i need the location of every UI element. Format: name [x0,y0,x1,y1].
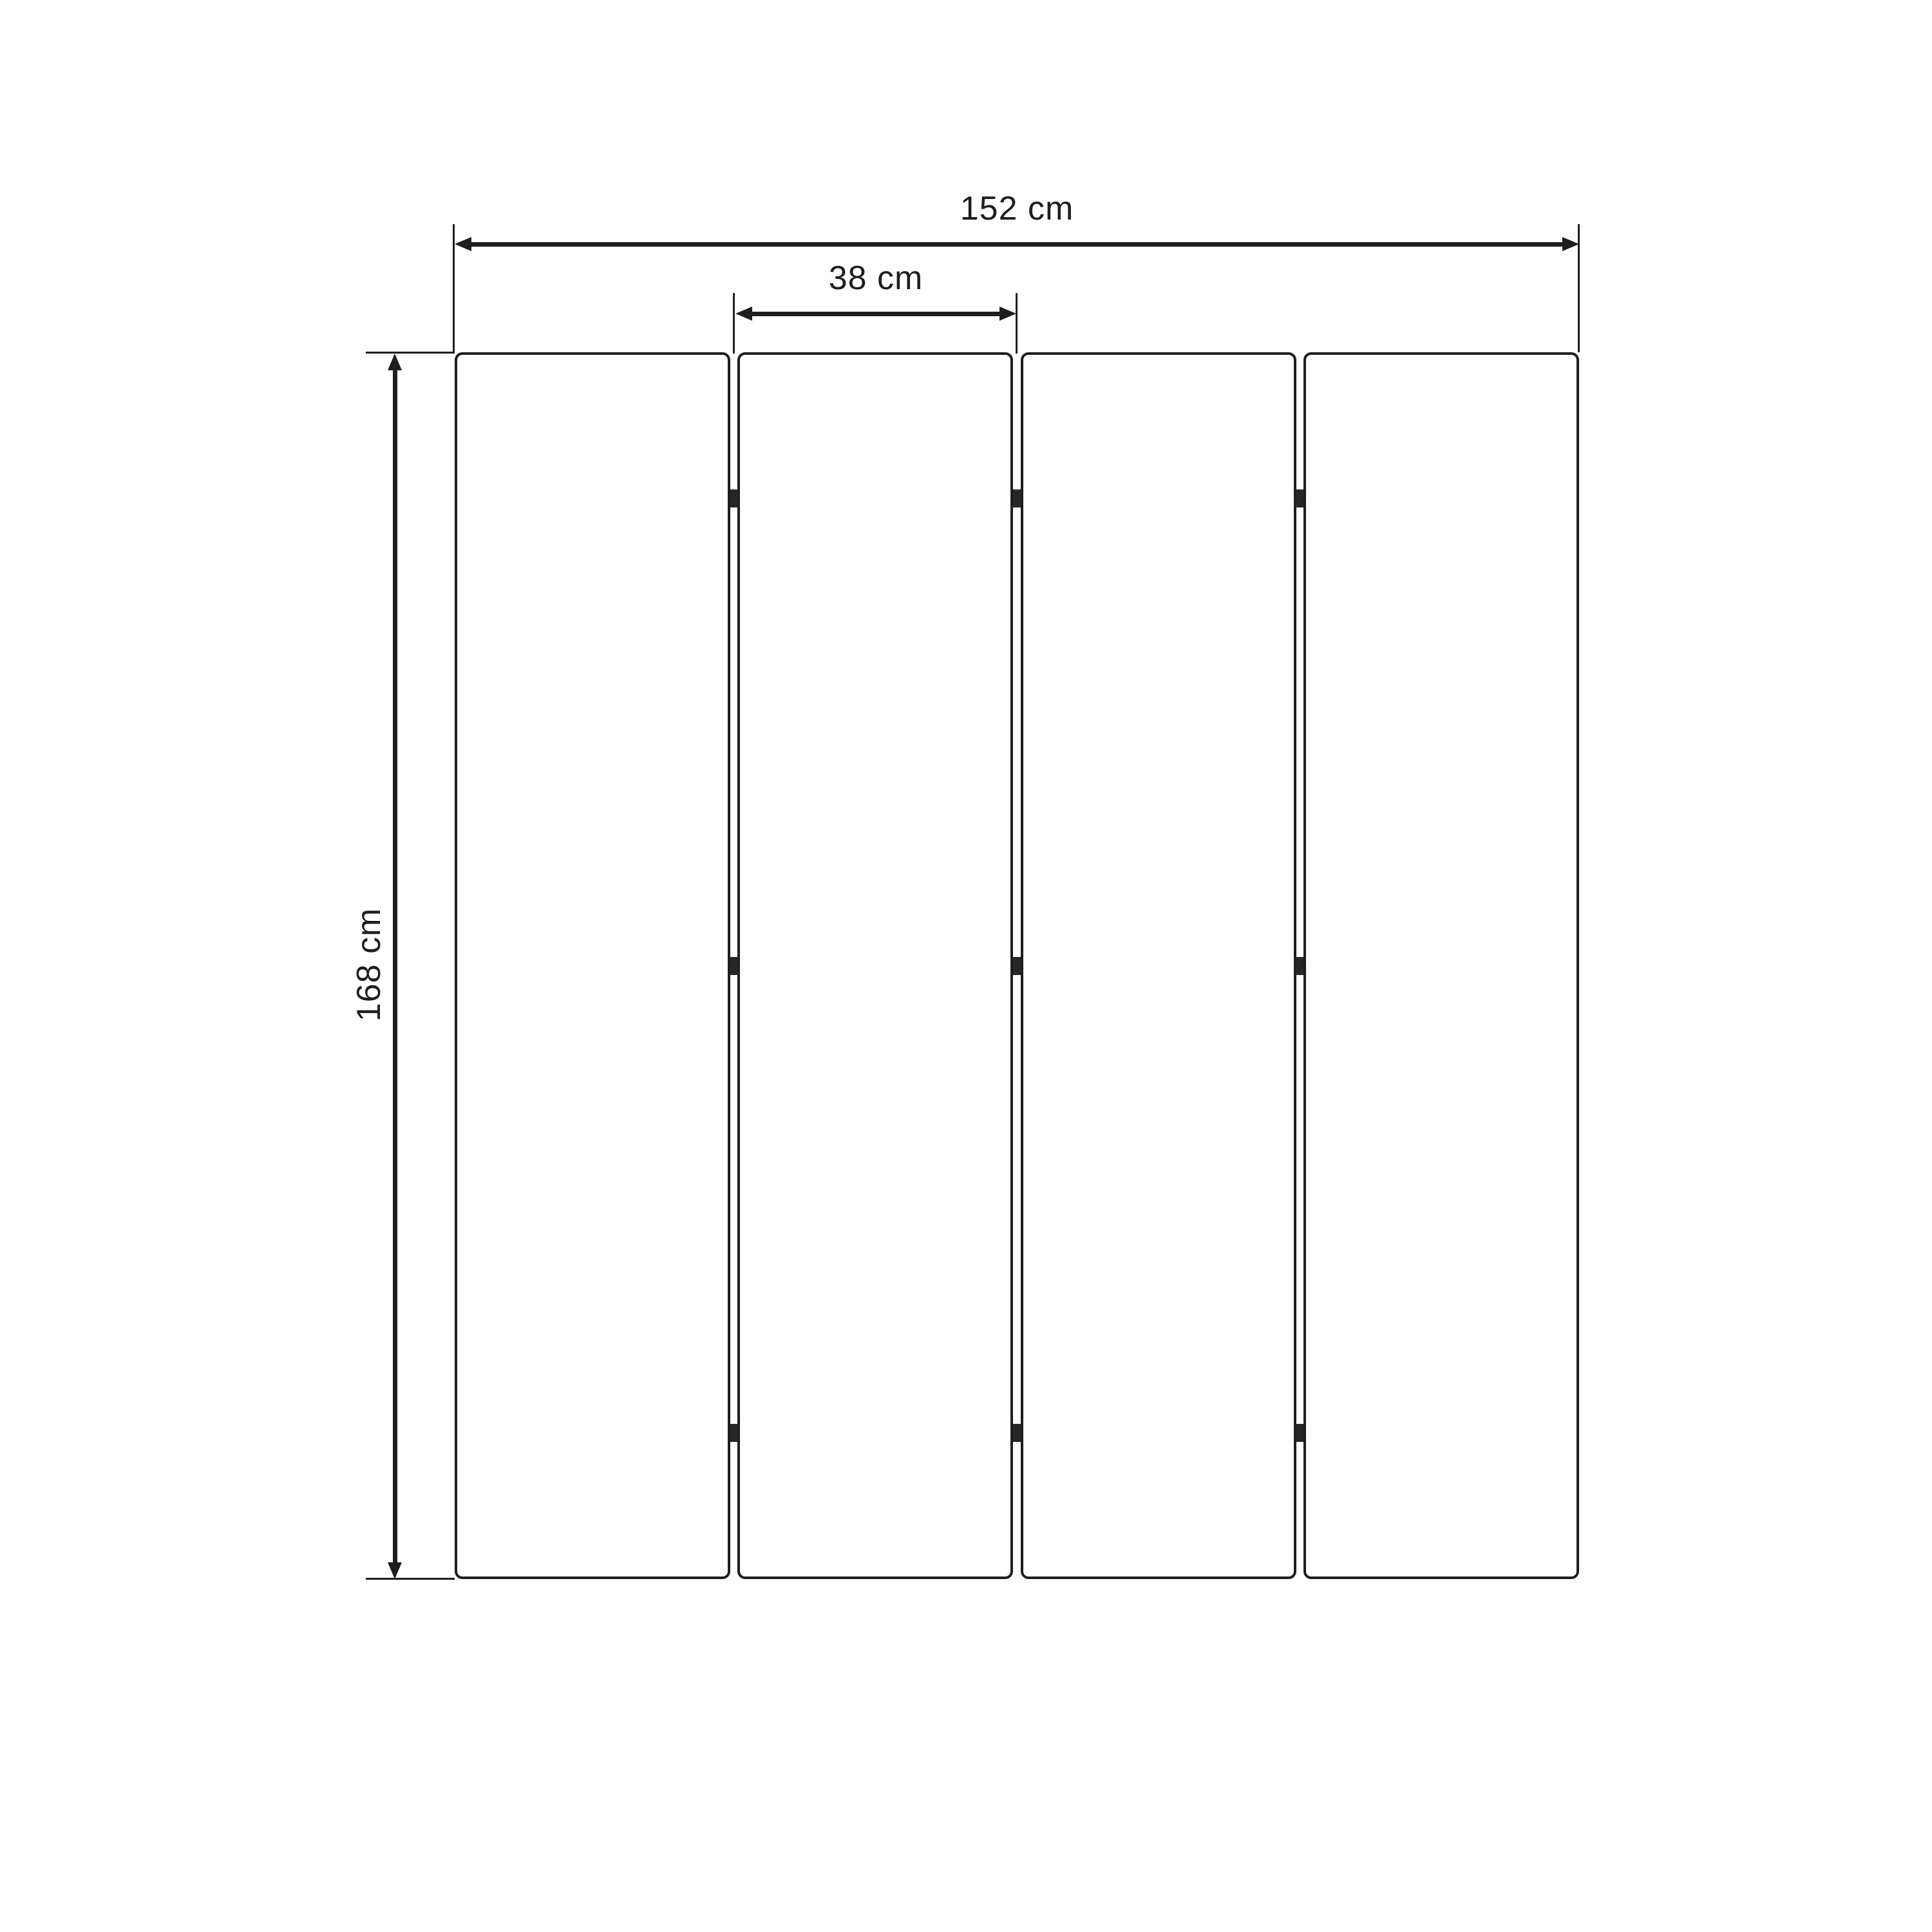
panel-width-dimension-label: 38 cm [735,260,1016,296]
hinge-junction2-row3 [1013,1424,1021,1442]
dimension-line [393,366,397,1566]
hinge-junction2-row1 [1013,489,1021,507]
arrowhead-left-icon [455,237,471,251]
hinge-junction2-row2 [1013,957,1021,975]
panel-4 [1303,352,1579,1579]
extension-line-bottom [366,1578,455,1580]
panel-2 [737,352,1013,1579]
arrowhead-left-icon [735,307,752,321]
extension-line-top [366,352,455,354]
dimension-diagram: 152 cm 38 cm 168 cm [0,0,1932,1932]
hinge-junction3-row1 [1296,489,1303,507]
arrowhead-up-icon [388,354,402,370]
arrowhead-down-icon [388,1562,402,1579]
hinge-junction1-row2 [730,957,738,975]
dimension-line [466,242,1566,247]
hinge-junction1-row1 [730,489,738,507]
extension-line-left [733,293,735,354]
arrowhead-right-icon [999,307,1016,321]
panel-1 [455,352,730,1579]
dimension-line [747,312,1003,316]
hinge-junction3-row3 [1296,1424,1303,1442]
hinge-junction1-row3 [730,1424,738,1442]
extension-line-right [1016,293,1018,354]
width-dimension-label: 152 cm [455,191,1579,227]
panel-3 [1021,352,1296,1579]
height-dimension-label: 168 cm [351,868,387,1061]
hinge-junction3-row2 [1296,957,1303,975]
arrowhead-right-icon [1562,237,1579,251]
